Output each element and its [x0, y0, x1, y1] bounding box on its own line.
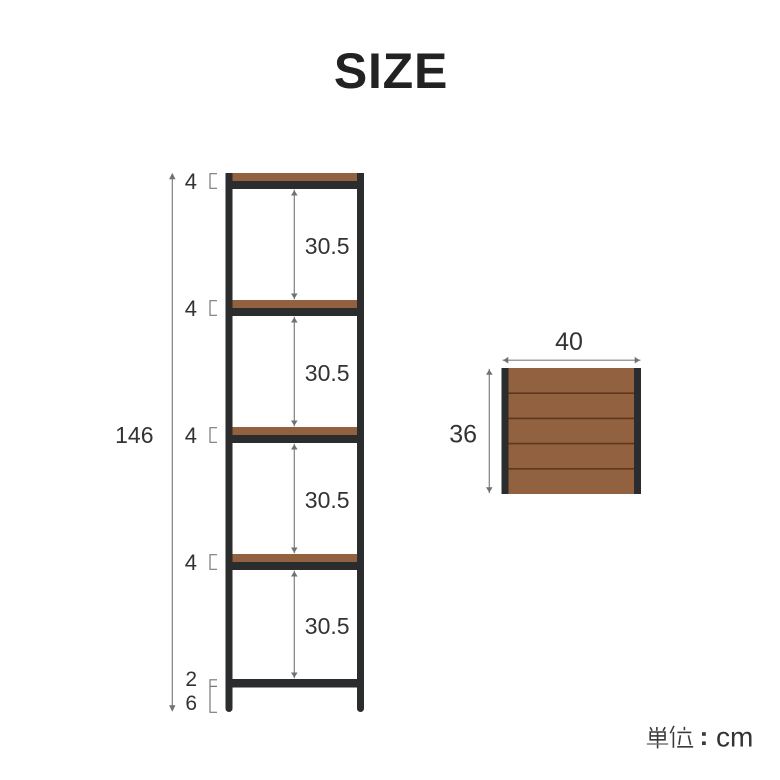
svg-text:SIZE: SIZE [334, 43, 448, 99]
svg-text:30.5: 30.5 [305, 360, 350, 386]
svg-text:40: 40 [555, 328, 583, 356]
svg-text:30.5: 30.5 [305, 233, 350, 259]
svg-text:2: 2 [185, 668, 197, 691]
svg-text:4: 4 [185, 296, 197, 321]
svg-text:cm: cm [716, 722, 753, 753]
svg-text:4: 4 [185, 169, 197, 194]
svg-text:4: 4 [185, 423, 197, 448]
svg-text:4: 4 [185, 550, 197, 575]
svg-text:30.5: 30.5 [305, 613, 350, 639]
svg-text:146: 146 [115, 422, 153, 448]
svg-text:36: 36 [449, 421, 477, 449]
svg-text:6: 6 [185, 692, 197, 715]
svg-text:30.5: 30.5 [305, 487, 350, 513]
